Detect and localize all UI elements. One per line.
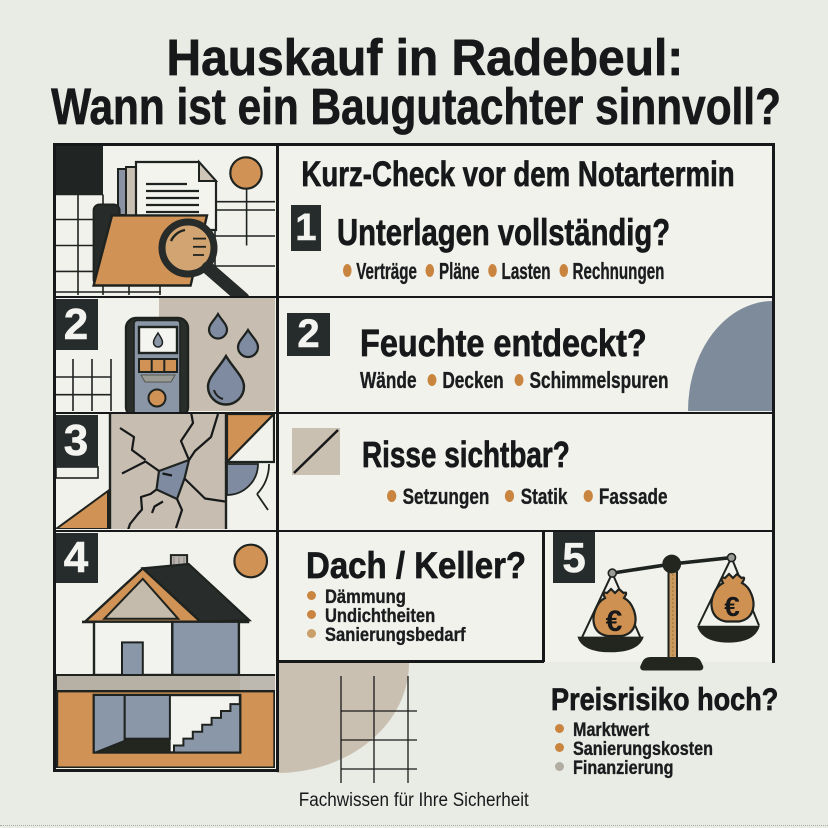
svg-text:€: €	[606, 605, 623, 638]
svg-text:€: €	[724, 591, 740, 622]
